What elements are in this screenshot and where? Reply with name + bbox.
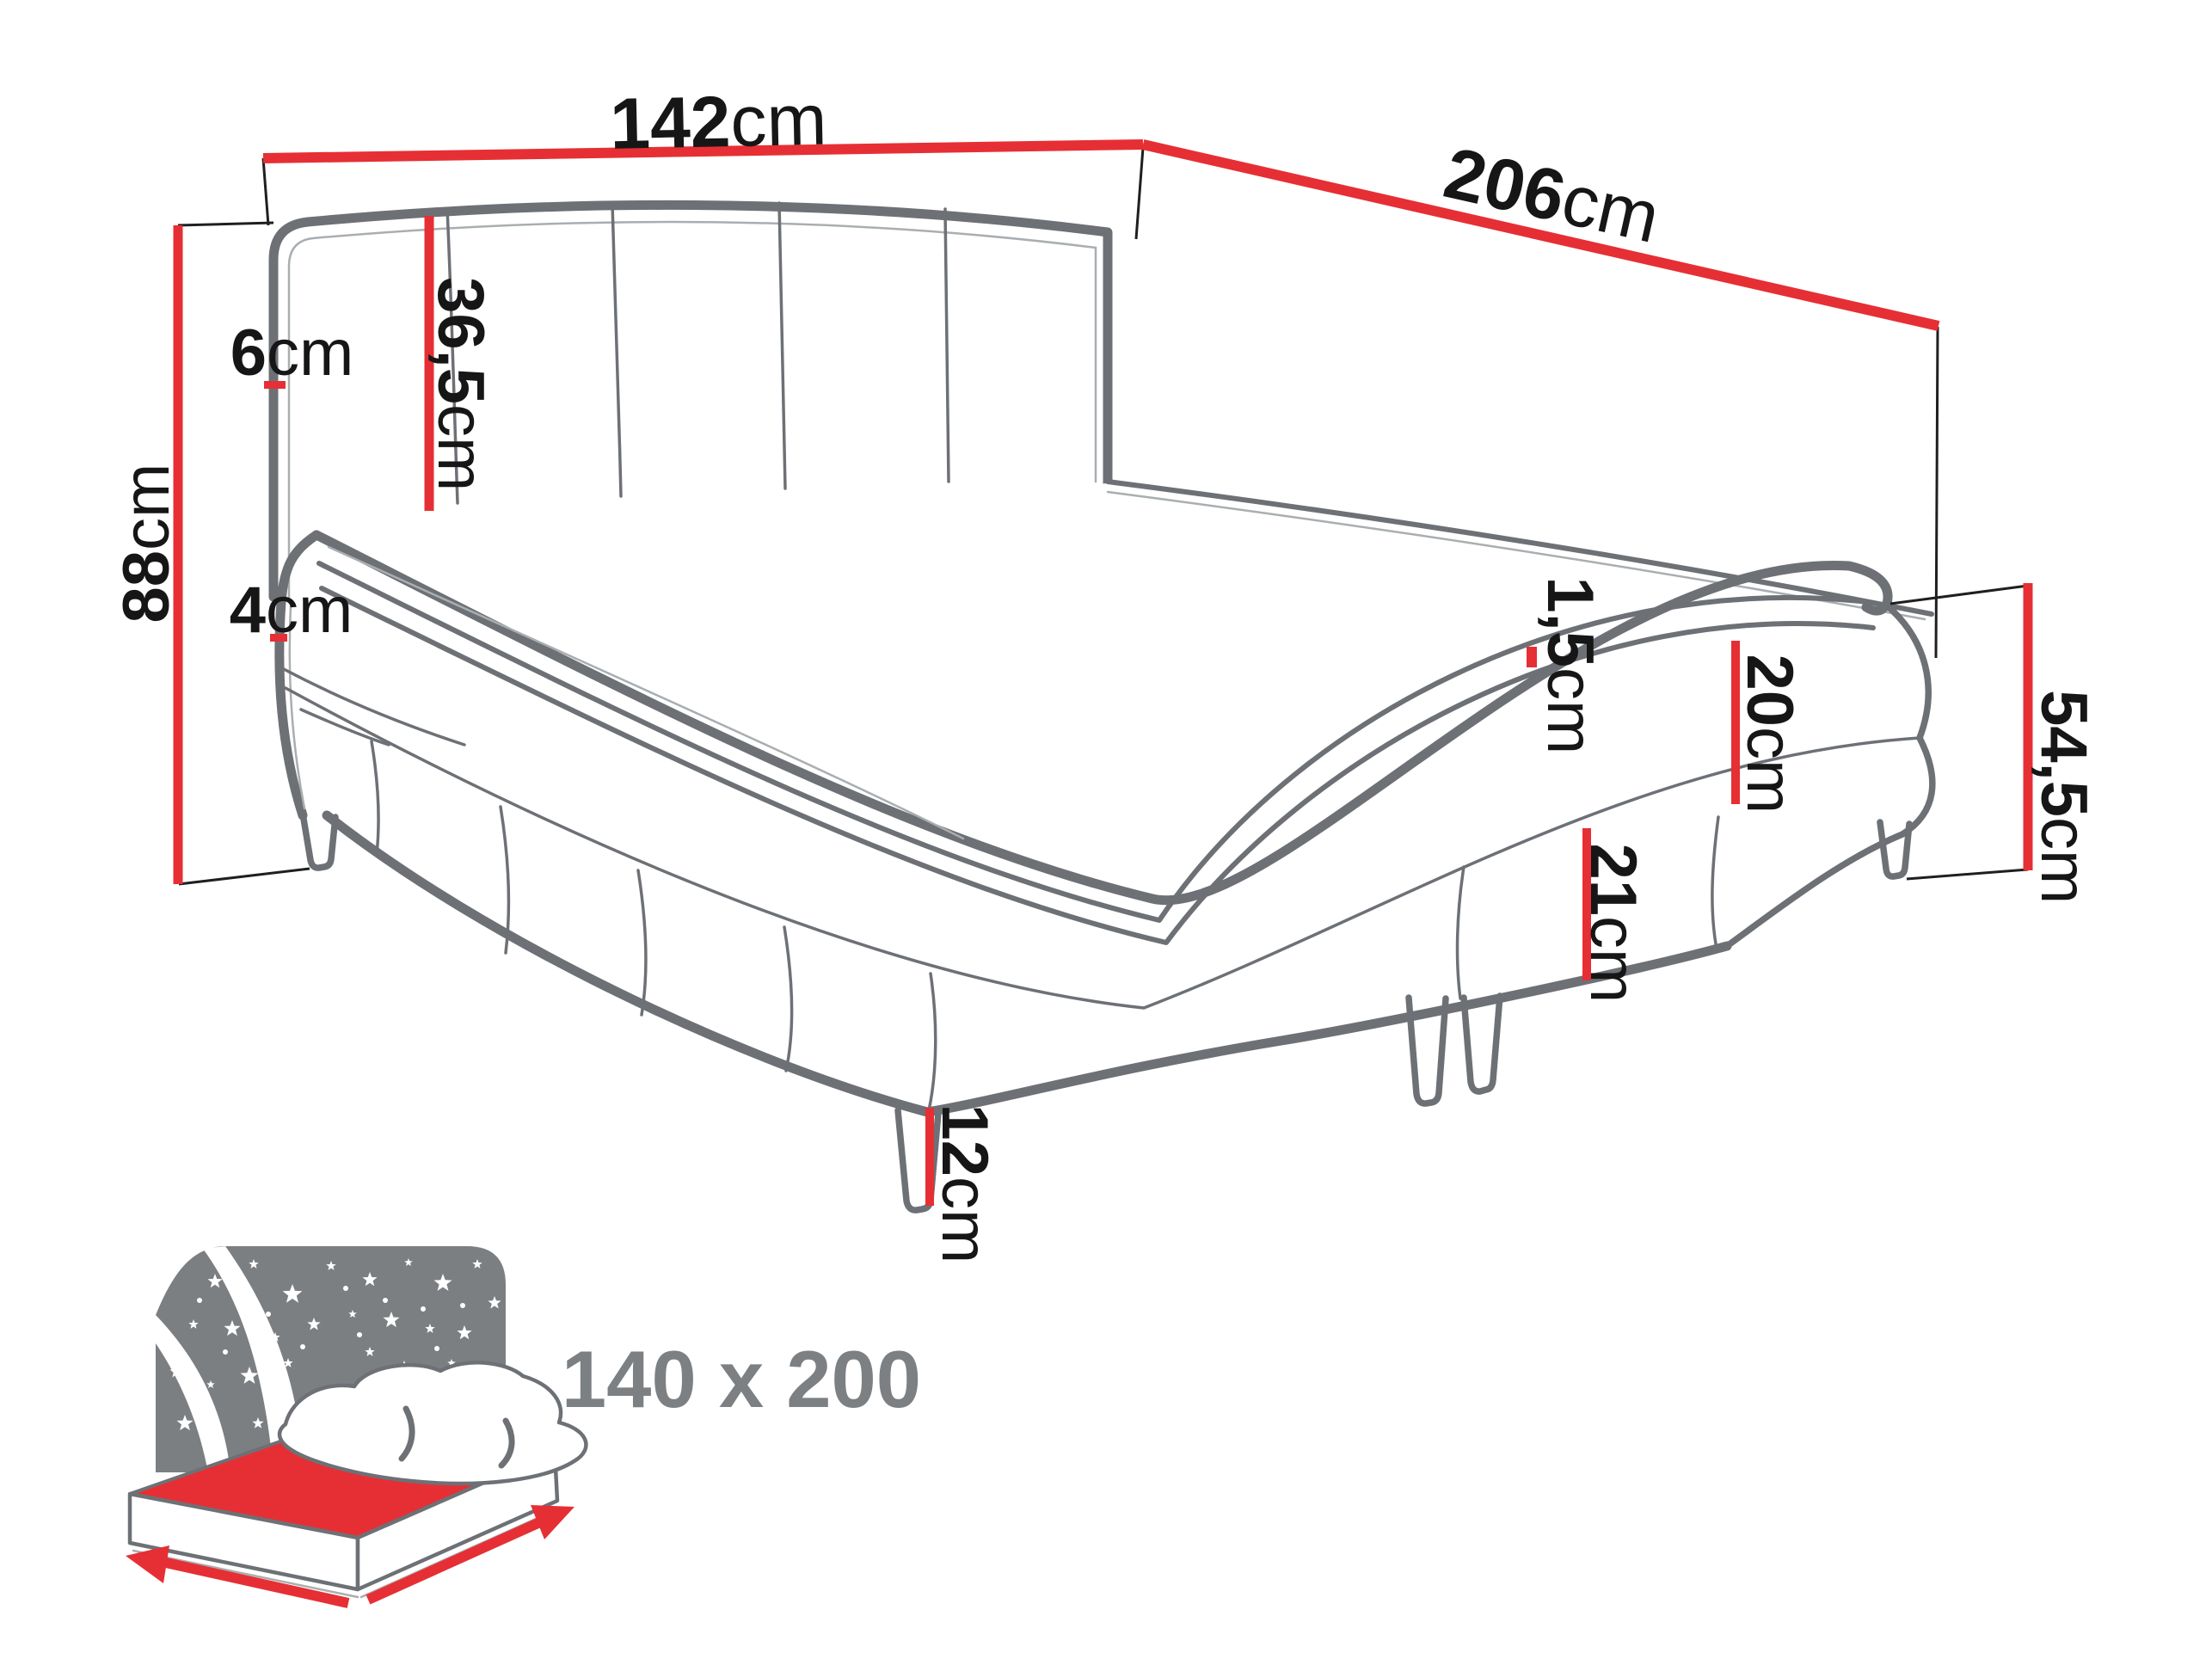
dim-label-height: 88 cm (110, 464, 183, 624)
dim-unit: cm (2027, 817, 2100, 904)
mattress-top-fill (316, 483, 1932, 900)
dim-value: 6 (230, 316, 267, 390)
headboard-seam (945, 209, 949, 482)
lower-box-right-edge (1902, 738, 1932, 834)
star-dot-icon (343, 1286, 348, 1291)
dim-value: 54,5 (2027, 690, 2100, 817)
dim-value: 36,5 (424, 277, 497, 404)
dim-label-seam: 1,5 cm (1533, 576, 1607, 754)
star-dot-icon (434, 1346, 439, 1351)
dim-value: 142 (609, 81, 731, 164)
dim-value: 21 (1576, 843, 1650, 916)
dim-unit: cm (928, 1177, 1001, 1263)
size-label: 140 x 200 (562, 1334, 921, 1424)
star-dot-icon (300, 1344, 305, 1349)
extension-line (263, 158, 268, 225)
star-dot-icon (357, 1332, 362, 1337)
dim-label-upper-box: 20 cm (1733, 654, 1806, 814)
dim-label-headboard-depth: 6 cm (230, 316, 354, 390)
dim-label-headboard-above: 36,5 cm (424, 277, 497, 491)
dim-unit: cm (110, 464, 183, 550)
foot-bottom-edge (1727, 834, 1902, 946)
extension-line (1936, 327, 1938, 658)
dim-label-lower-box: 21 cm (1576, 843, 1650, 1003)
dim-unit: cm (424, 404, 497, 491)
dim-unit: cm (266, 574, 353, 647)
box-seam-line (1712, 817, 1718, 949)
extension-line (1890, 586, 2028, 604)
dim-value: 4 (230, 574, 266, 647)
box-seam-line (638, 870, 646, 1015)
headboard-seam (779, 203, 785, 488)
dim-label-width: 142 cm (609, 79, 827, 164)
dim-value: 1,5 (1533, 576, 1607, 667)
box-seam-line (784, 927, 792, 1071)
dim-unit: cm (729, 79, 827, 162)
star-dot-icon (266, 1312, 271, 1317)
dim-value: 12 (928, 1103, 1001, 1177)
star-dot-icon (421, 1306, 426, 1312)
upper-box-right-edge (1887, 605, 1928, 738)
head-end-line (301, 710, 389, 745)
dim-label-topper: 4 cm (230, 574, 353, 647)
bed-dimensions-diagram: 142 cm 206 cm 88 cm 6 cm 36,5 cm 4 cm 1,… (0, 0, 2212, 1659)
dim-label-leg: 12 cm (928, 1103, 1001, 1263)
dim-value: 88 (110, 550, 183, 624)
box-seam-line (929, 974, 936, 1110)
extension-line (178, 223, 273, 225)
box-seam-line (372, 741, 378, 854)
box-seam-line (1458, 867, 1464, 998)
star-dot-icon (460, 1303, 465, 1308)
star-dot-icon (197, 1298, 202, 1303)
dim-unit: cm (1576, 916, 1650, 1003)
star-dot-icon (223, 1349, 228, 1355)
headboard-seams (447, 203, 949, 503)
bed-size-icon (126, 1246, 586, 1603)
bed-drawing (273, 203, 1932, 1210)
star-dot-icon (197, 1401, 202, 1406)
dim-unit: cm (1733, 727, 1806, 814)
dim-label-side-height: 54,5 cm (2027, 690, 2100, 904)
arrow-head (126, 1545, 169, 1583)
headboard-seam (612, 204, 621, 496)
dim-unit: cm (267, 316, 353, 390)
extension-line (1136, 148, 1143, 239)
star-dot-icon (383, 1298, 388, 1303)
bed-leg (1464, 996, 1500, 1091)
dim-unit: cm (1533, 667, 1607, 754)
extension-line (1907, 869, 2028, 879)
extension-line (179, 869, 310, 884)
dim-value: 20 (1733, 654, 1806, 727)
star-dot-icon (274, 1392, 280, 1398)
